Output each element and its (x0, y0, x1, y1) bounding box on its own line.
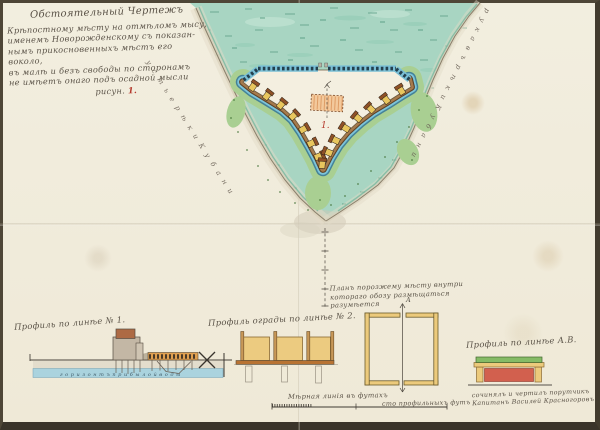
figure-number: 1. (128, 85, 137, 95)
profile-ab-drawing (468, 357, 552, 385)
buried-post (246, 366, 253, 382)
plan-note: Планъ порозжему мѣсту внутри котораго об… (330, 279, 481, 310)
pier-head-right (325, 63, 328, 67)
leg-left (477, 367, 484, 382)
scale-bar-label: Мѣрная линія въ футахъ (288, 391, 388, 401)
palisade-panel (310, 337, 331, 361)
fort-number-label: 1. (321, 121, 330, 131)
square-plan: А (365, 297, 438, 392)
palisade-post (274, 332, 277, 361)
palisade-panel (277, 337, 303, 361)
palisade-post (331, 332, 334, 361)
map-photo: 1. у с т ь е р ѣ к и К у б а н и р у к а… (0, 0, 600, 430)
red-infill (485, 369, 534, 382)
profile-1-drawing: г о р и з о н т ъ п р и б ы л о й в о д … (30, 329, 232, 378)
rail (474, 363, 544, 368)
scale-bar-right-text: сто профильныхъ футъ (382, 398, 471, 408)
palisade-panel (244, 337, 270, 361)
palisade-post (241, 332, 244, 361)
water-level-text: г о р и з о н т ъ п р и б ы л о й в о д … (60, 371, 181, 378)
buried-post (316, 366, 322, 383)
pier-head-left (319, 63, 322, 67)
green-top-slab (476, 357, 542, 363)
profile-2-drawing (234, 332, 338, 384)
palisade-post (307, 332, 310, 361)
buried-post (282, 366, 288, 382)
palisade-sill (236, 361, 334, 365)
leg-right (535, 367, 542, 382)
vertical-scale-line (322, 228, 329, 308)
title-block: Обстоятельный Чертежъ Крѣпостному мѣсту … (7, 4, 210, 100)
